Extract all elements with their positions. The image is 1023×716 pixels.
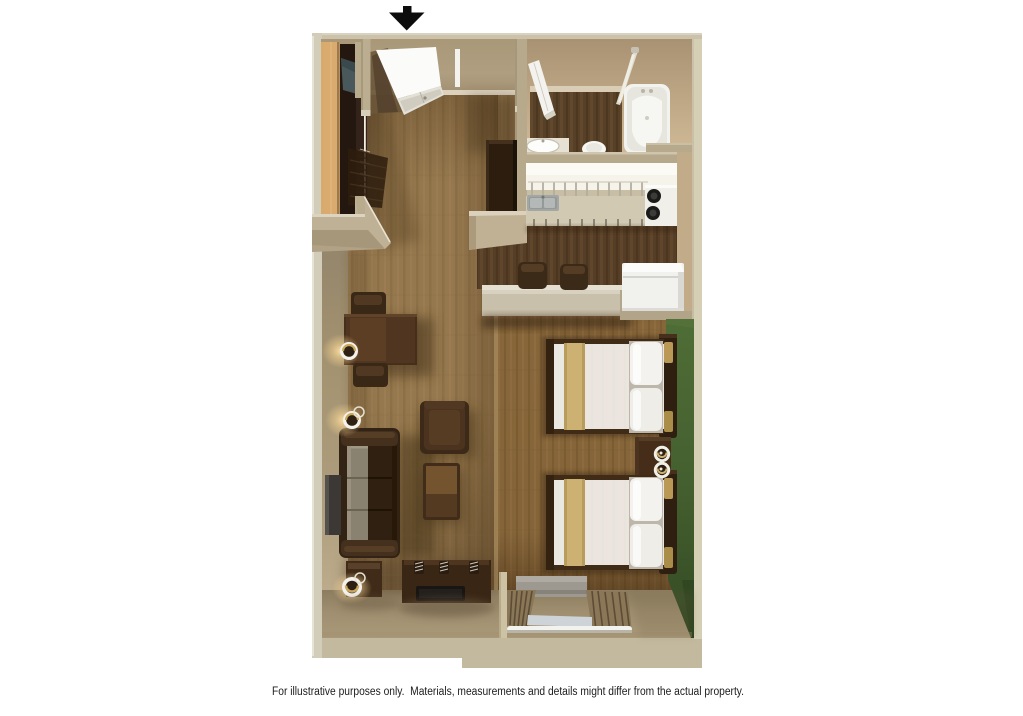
- svg-text:For illustrative purposes only: For illustrative purposes only. Material…: [272, 686, 744, 698]
